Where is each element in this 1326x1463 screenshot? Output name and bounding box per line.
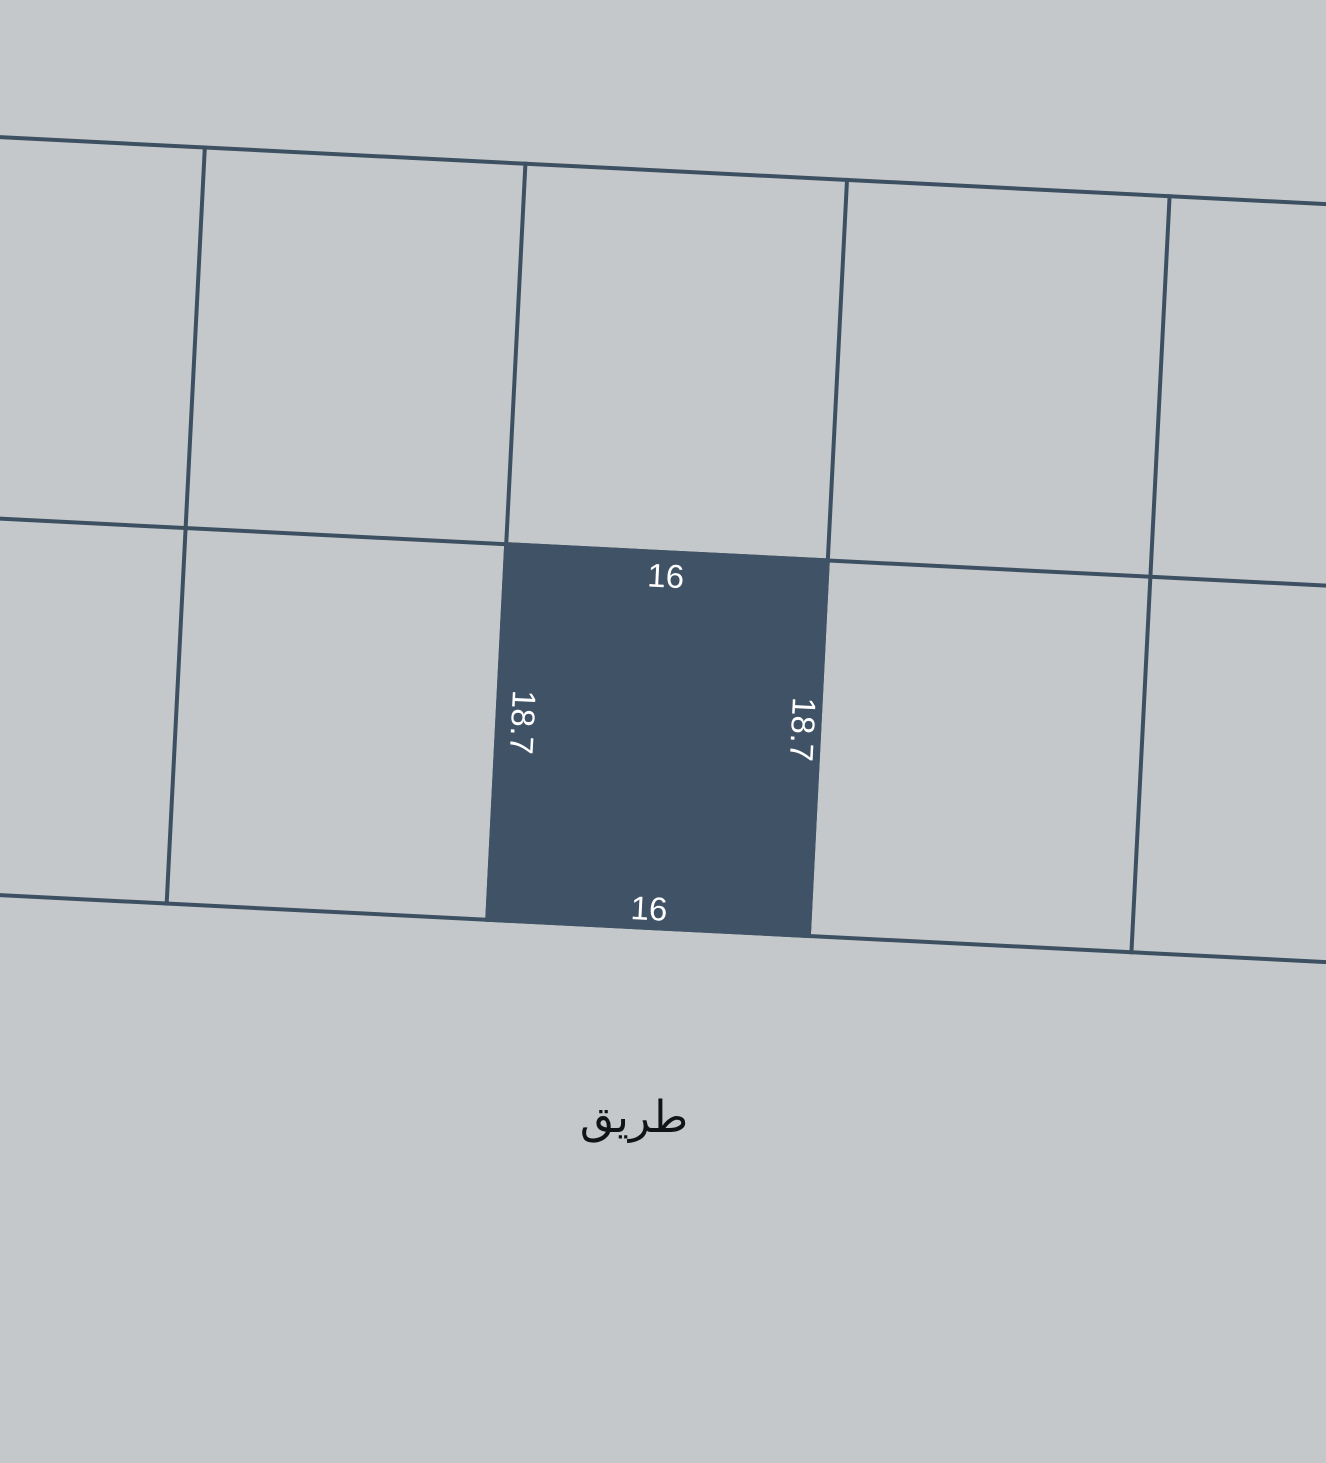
- parcel-grid: 16 16 18.7 18.7: [0, 0, 1326, 1184]
- plot-dim-bottom-label: 16: [485, 882, 812, 935]
- plot-dim-left-label: 18.7: [503, 689, 542, 755]
- road-label: طريق: [534, 1092, 734, 1145]
- parcel-map: 16 16 18.7 18.7 طريق: [0, 0, 1326, 1463]
- plot-dim-right-label: 18.7: [783, 696, 822, 762]
- plot-dim-top-label: 16: [502, 550, 829, 603]
- highlighted-plot[interactable]: 16 16 18.7 18.7: [485, 542, 830, 938]
